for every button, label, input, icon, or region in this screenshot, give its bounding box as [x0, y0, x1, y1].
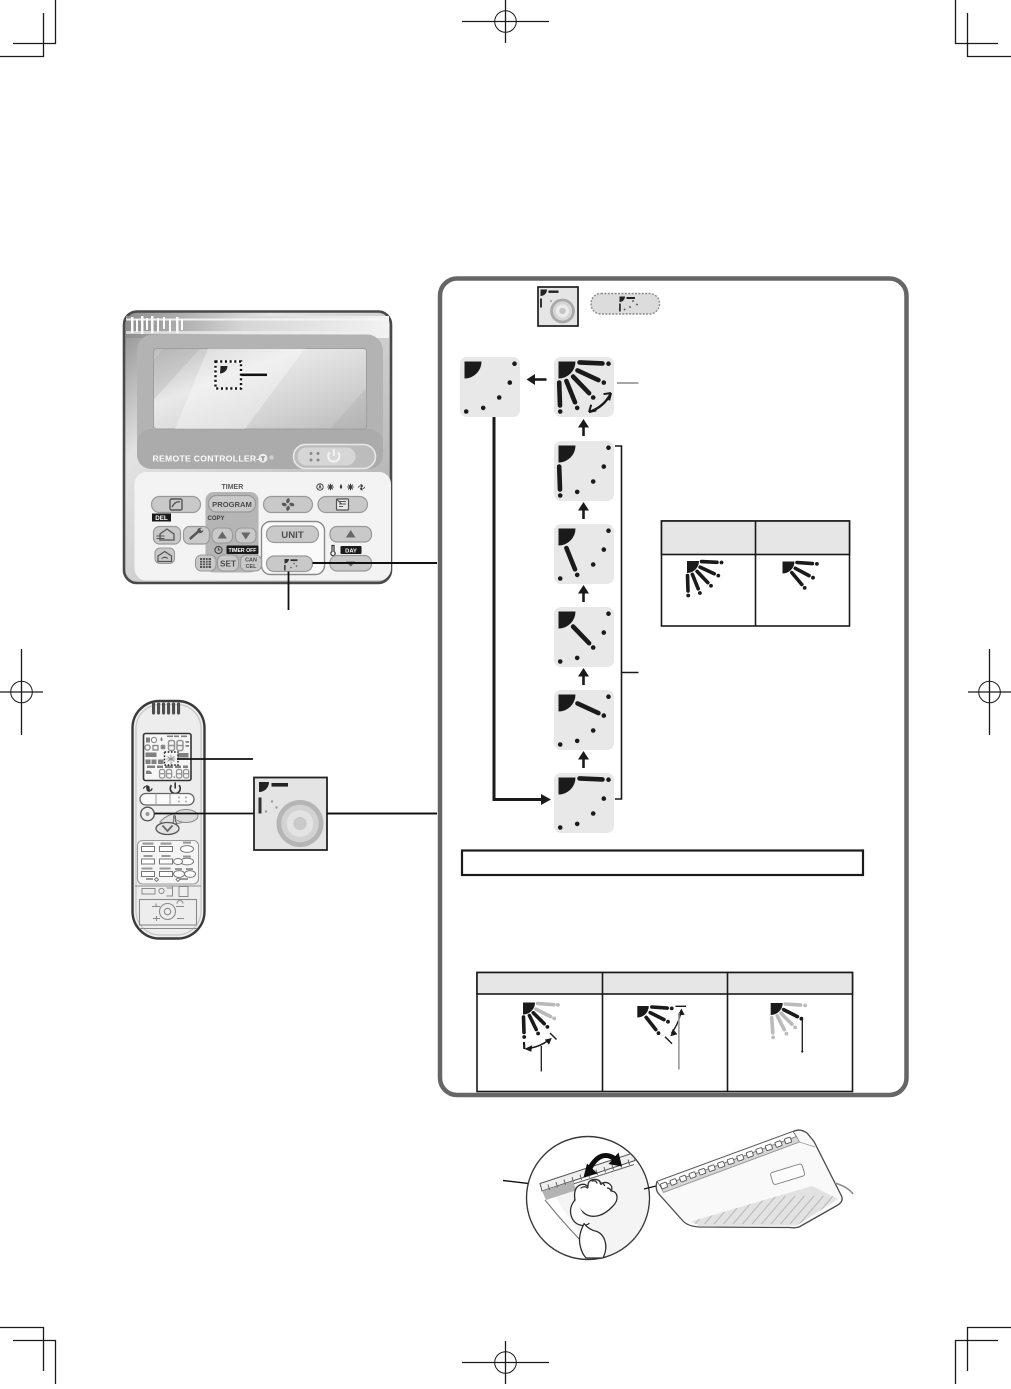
svg-text:COPY: COPY [208, 516, 225, 522]
svg-text:TIMER OFF: TIMER OFF [229, 548, 257, 554]
svg-text:DEL: DEL [155, 515, 168, 522]
svg-text:SET: SET [220, 560, 236, 569]
svg-text:CEL: CEL [246, 564, 257, 570]
svg-text:REMOTE CONTROLLER-: REMOTE CONTROLLER- [153, 454, 260, 464]
svg-text:PROGRAM: PROGRAM [212, 500, 252, 509]
svg-text:CAN: CAN [245, 558, 257, 564]
svg-text:UNIT: UNIT [281, 530, 304, 541]
svg-text:DAY: DAY [345, 549, 357, 555]
svg-text:TIMER: TIMER [222, 484, 244, 491]
